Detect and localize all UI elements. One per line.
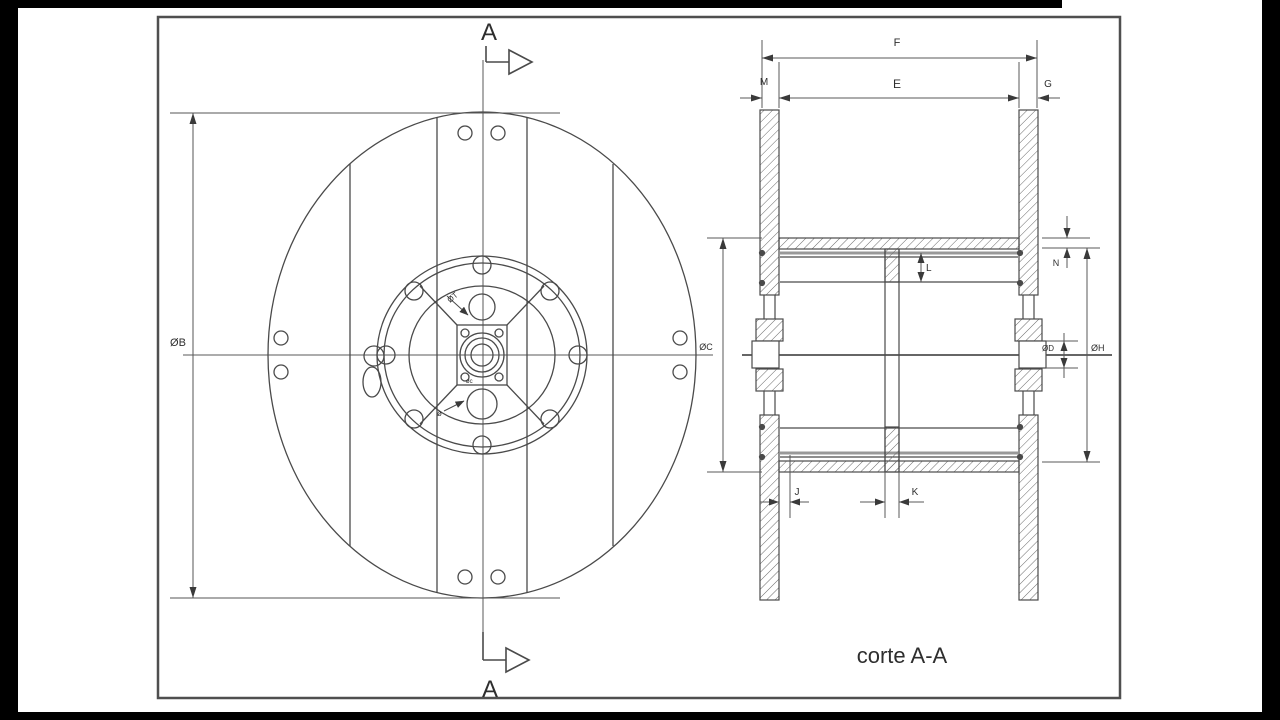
dim-c-label: ØC: [699, 342, 713, 352]
letterbox-left: [0, 0, 18, 720]
dim-d-label: ØD: [1042, 344, 1054, 353]
left-shaft-hole: [752, 341, 779, 368]
hub-label-small-o: ø: [437, 409, 442, 418]
reel-technical-drawing: ØB ØT øc ø A A: [0, 0, 1280, 720]
cad-drawing-screenshot: ØB ØT øc ø A A: [0, 0, 1280, 720]
flange-bolt: [760, 251, 765, 256]
section-letter-bottom: A: [482, 676, 498, 703]
dim-j-label: J: [795, 487, 800, 498]
divider-hatch-top: [885, 249, 899, 282]
letterbox-top: [0, 0, 1062, 8]
left-flange-upper: [760, 110, 779, 295]
right-flange-upper: [1019, 110, 1038, 295]
left-flange-lower: [760, 415, 779, 600]
dim-n-label: N: [1053, 258, 1060, 268]
dim-h-label: ØH: [1091, 343, 1105, 353]
section-letter-top: A: [481, 19, 497, 46]
dim-f-label: F: [894, 37, 901, 49]
flange-bolt: [760, 425, 765, 430]
flange-bolt: [1018, 251, 1023, 256]
dim-b-label: ØB: [170, 337, 186, 349]
dim-k-label: K: [912, 487, 919, 498]
flange-bolt: [760, 281, 765, 286]
flange-bolt: [760, 455, 765, 460]
flange-bolt: [1018, 281, 1023, 286]
section-caption: corte A-A: [857, 643, 948, 668]
hub-label-small-c: øc: [466, 379, 473, 385]
right-hub-boss: [1015, 319, 1042, 341]
divider-hatch-bottom: [885, 427, 899, 472]
letterbox-right: [1262, 0, 1280, 720]
drum-shell-top: [779, 238, 1019, 249]
letterbox-bottom: [0, 712, 1280, 720]
left-hub-boss: [756, 369, 783, 391]
flange-bolt: [1018, 455, 1023, 460]
dim-g-label: G: [1044, 79, 1052, 90]
flange-bolt: [1018, 425, 1023, 430]
right-hub-boss: [1015, 369, 1042, 391]
left-hub-boss: [756, 319, 783, 341]
drawing-frame: [158, 17, 1120, 698]
dim-l-label: L: [926, 263, 932, 274]
dim-m-label: M: [760, 77, 768, 88]
right-flange-lower: [1019, 415, 1038, 600]
dim-e-label: E: [893, 77, 901, 91]
